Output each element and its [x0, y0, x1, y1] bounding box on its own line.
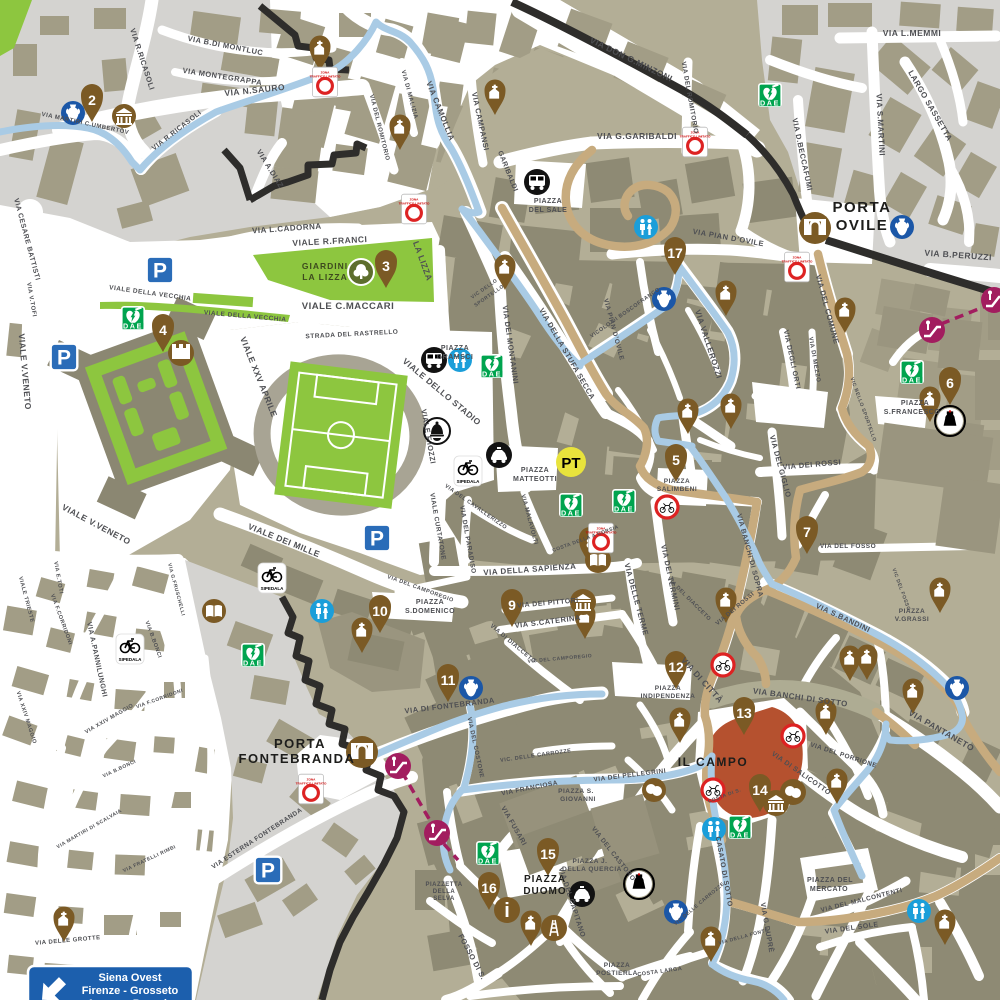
svg-text:17: 17	[667, 245, 683, 261]
svg-text:PIAZZA: PIAZZA	[899, 608, 925, 615]
svg-text:DAE: DAE	[614, 504, 634, 513]
svg-text:S.FRANCESCO: S.FRANCESCO	[884, 409, 941, 416]
svg-text:FONTEBRANDA: FONTEBRANDA	[239, 751, 356, 766]
svg-text:MERCATO: MERCATO	[810, 886, 848, 893]
svg-text:DEL SALE: DEL SALE	[529, 207, 568, 214]
svg-text:GIOVANNI: GIOVANNI	[560, 796, 596, 803]
svg-text:Siena Ovest: Siena Ovest	[99, 972, 162, 984]
svg-text:PIAZZA: PIAZZA	[655, 685, 681, 692]
svg-text:PIAZZA: PIAZZA	[416, 599, 444, 606]
svg-text:V.GRASSI: V.GRASSI	[895, 616, 929, 623]
svg-text:VIA G.GARIBALDI: VIA G.GARIBALDI	[597, 131, 677, 141]
svg-text:15: 15	[540, 846, 556, 862]
svg-text:PIAZZA: PIAZZA	[901, 400, 929, 407]
svg-text:6: 6	[946, 375, 954, 391]
svg-text:5: 5	[672, 452, 680, 468]
svg-text:PORTA: PORTA	[833, 199, 892, 216]
svg-text:3: 3	[382, 258, 390, 274]
svg-text:IL CAMPO: IL CAMPO	[678, 755, 748, 769]
svg-text:PIAZZA: PIAZZA	[664, 478, 690, 485]
svg-text:DAE: DAE	[243, 658, 263, 667]
svg-text:DAE: DAE	[730, 830, 750, 839]
svg-text:DAE: DAE	[482, 369, 502, 378]
svg-text:10: 10	[372, 603, 388, 619]
svg-text:SIPEDALA: SIPEDALA	[261, 586, 285, 591]
svg-text:DAE: DAE	[760, 98, 780, 107]
svg-text:PIAZZA: PIAZZA	[534, 198, 562, 205]
svg-text:POSTIERLA: POSTIERLA	[596, 970, 638, 977]
svg-text:PORTA: PORTA	[274, 736, 326, 751]
svg-text:P: P	[261, 860, 275, 883]
svg-text:16: 16	[481, 880, 497, 896]
svg-text:DAE: DAE	[902, 375, 922, 384]
svg-text:i: i	[504, 900, 510, 922]
svg-text:DELLA QUERCIA: DELLA QUERCIA	[562, 866, 622, 873]
svg-text:VIA DEL FOSSO: VIA DEL FOSSO	[820, 543, 876, 550]
svg-text:INDIPENDENZA: INDIPENDENZA	[641, 693, 696, 700]
svg-text:GIARDINI: GIARDINI	[302, 261, 348, 271]
svg-text:2: 2	[88, 92, 96, 108]
svg-text:4: 4	[159, 322, 167, 338]
svg-text:P: P	[370, 528, 384, 551]
svg-text:Firenze - Grosseto: Firenze - Grosseto	[82, 985, 179, 997]
svg-text:DELLA: DELLA	[433, 889, 456, 895]
svg-text:SIPEDALA: SIPEDALA	[119, 657, 143, 662]
svg-text:PIAZZA S.: PIAZZA S.	[558, 788, 594, 795]
svg-text:LA LIZZA: LA LIZZA	[302, 272, 347, 282]
svg-text:DAE: DAE	[123, 321, 143, 330]
svg-text:P: P	[57, 347, 71, 370]
svg-text:PIAZZA DEL: PIAZZA DEL	[807, 877, 853, 884]
svg-text:DUOMO: DUOMO	[523, 886, 566, 897]
svg-text:7: 7	[803, 524, 811, 540]
svg-text:PIAZZA: PIAZZA	[604, 962, 630, 969]
svg-text:PIAZZA: PIAZZA	[441, 345, 469, 352]
svg-text:S.DOMENICO: S.DOMENICO	[405, 608, 455, 615]
svg-text:SIPEDALA: SIPEDALA	[457, 479, 481, 484]
svg-text:VIALE C.MACCARI: VIALE C.MACCARI	[302, 301, 394, 312]
svg-text:MATTEOTTI: MATTEOTTI	[513, 476, 557, 483]
svg-text:11: 11	[441, 672, 456, 688]
svg-text:PT: PT	[561, 455, 580, 472]
svg-text:PIAZZETTA: PIAZZETTA	[425, 882, 462, 888]
svg-text:OVILE: OVILE	[836, 217, 889, 234]
svg-text:PIAZZA: PIAZZA	[521, 467, 549, 474]
svg-text:DAE: DAE	[561, 508, 581, 517]
svg-text:DAE: DAE	[478, 856, 498, 865]
svg-text:PIAZZA J.: PIAZZA J.	[573, 858, 608, 865]
svg-text:SELVA: SELVA	[433, 896, 455, 902]
svg-text:13: 13	[736, 705, 752, 721]
svg-text:GRAMSCI: GRAMSCI	[437, 354, 474, 361]
svg-text:VIA L.MEMMI: VIA L.MEMMI	[883, 28, 942, 38]
svg-text:9: 9	[508, 597, 516, 613]
svg-text:SALIMBENI: SALIMBENI	[657, 486, 697, 493]
svg-text:P: P	[153, 260, 167, 283]
